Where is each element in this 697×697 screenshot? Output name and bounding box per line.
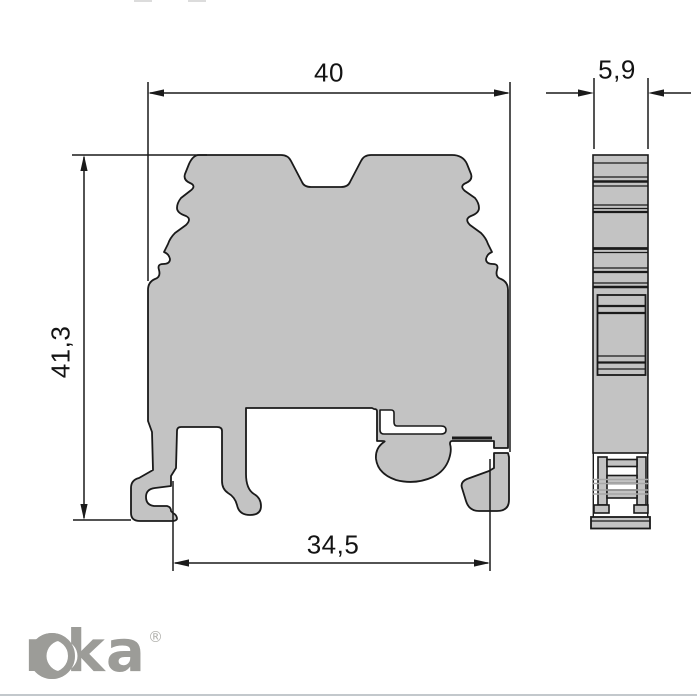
- logo-o-icon: [24, 626, 80, 684]
- arrowhead: [494, 89, 510, 96]
- side-body: [593, 155, 648, 453]
- dim-label-side-thickness: 5,9: [598, 55, 636, 86]
- arrowhead: [578, 89, 594, 96]
- drawing-svg: [0, 0, 697, 697]
- dim-label-height: 41,3: [46, 326, 77, 379]
- onka-logo: nka ®: [24, 622, 163, 680]
- arrowhead: [648, 89, 664, 96]
- arrowhead: [474, 559, 490, 566]
- front-right-foot: [462, 453, 509, 511]
- arrowhead: [80, 504, 87, 520]
- side-base-plate: [591, 517, 650, 529]
- side-clip-post-right: [637, 457, 646, 505]
- dim-label-bottom-width: 34,5: [307, 530, 360, 561]
- arrowhead: [80, 155, 87, 171]
- side-clip-foot-left: [594, 505, 609, 513]
- arrowhead: [173, 559, 189, 566]
- page-bottom-divider: [0, 694, 697, 696]
- dim-label-top-width: 40: [314, 58, 344, 89]
- side-clip-foot: [591, 453, 650, 529]
- side-clip-foot-right: [634, 505, 648, 513]
- dim-side-thickness: [546, 78, 691, 149]
- front-view: [131, 155, 509, 521]
- technical-drawing-page: 40 5,9 41,3 34,5 nka ®: [0, 0, 697, 697]
- registered-mark: ®: [148, 628, 163, 646]
- side-clip-post-left: [598, 457, 607, 505]
- arrowhead: [148, 89, 164, 96]
- side-clip-rung-top: [607, 460, 637, 467]
- side-view: [591, 155, 650, 529]
- front-body-outline: [131, 155, 508, 521]
